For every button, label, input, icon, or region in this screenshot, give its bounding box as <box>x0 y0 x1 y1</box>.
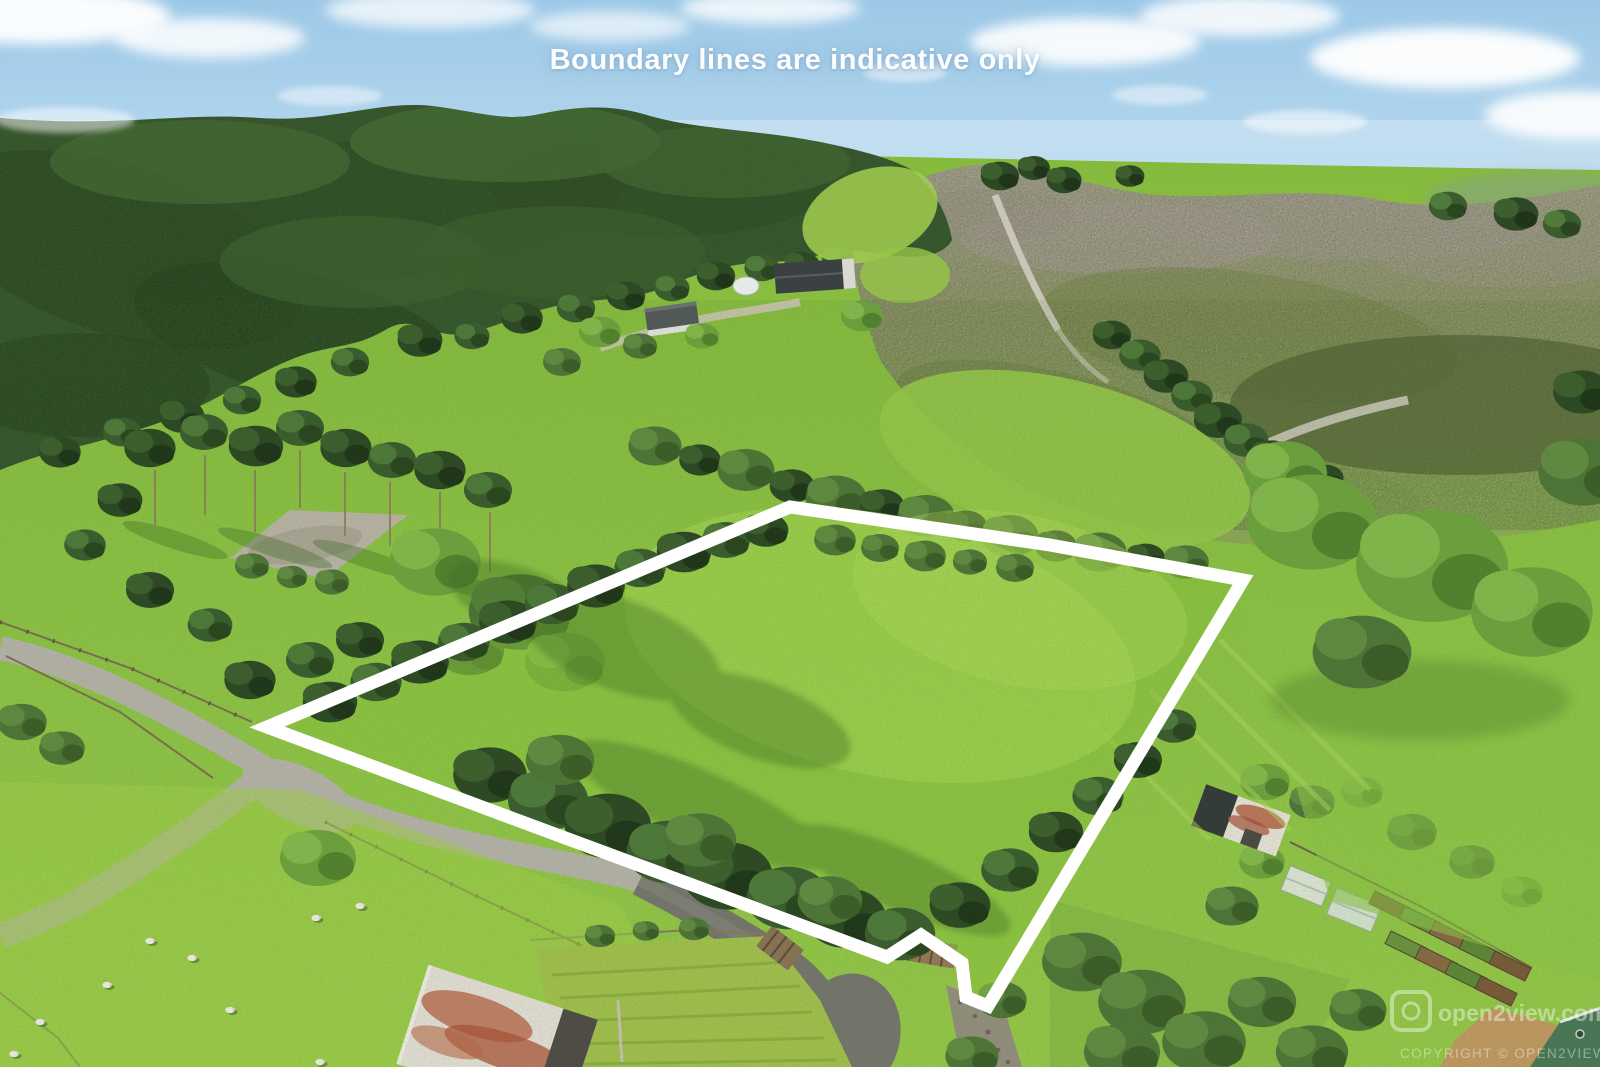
dome-greenhouse <box>733 277 759 295</box>
aerial-scene: open2view.com COPYRIGHT © OPEN2VIEW.COM <box>0 0 1600 1067</box>
watermark-logo-text: open2view.com <box>1438 1000 1600 1026</box>
watermark-copyright: COPYRIGHT © OPEN2VIEW.COM <box>1400 1046 1600 1061</box>
barn <box>774 258 856 294</box>
boundary-disclaimer-caption: Boundary lines are indicative only <box>550 44 1041 77</box>
aerial-property-photo: open2view.com COPYRIGHT © OPEN2VIEW.COM … <box>0 0 1600 1067</box>
grass-texture <box>0 300 1600 1067</box>
